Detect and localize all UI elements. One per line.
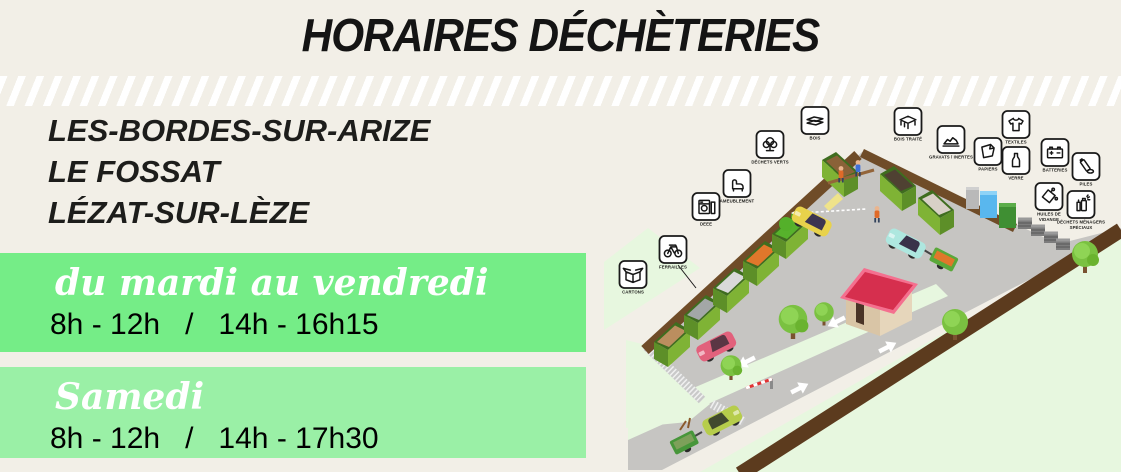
sign-huiles-de-vidange: HUILES DE VIDANGE: [1036, 183, 1063, 222]
sign-bois: BOIS: [802, 107, 829, 141]
sign-label: DÉCHETS VERTS: [751, 160, 788, 165]
location-list: LES-BORDES-SUR-ARIZE LE FOSSAT LÉZAT-SUR…: [48, 110, 430, 233]
sign-dechets-verts: DÉCHETS VERTS: [751, 131, 788, 165]
sign-label: HUILES DE: [1037, 212, 1061, 217]
sign-ferrailles: FERRAILLES: [659, 236, 687, 270]
sign-verre: VERRE: [1003, 147, 1030, 181]
sign-ameublement: AMEUBLEMENT: [720, 170, 755, 204]
sign-label: FERRAILLES: [659, 265, 687, 270]
sign-label: AMEUBLEMENT: [720, 199, 755, 204]
schedule-days-label: Samedi: [55, 377, 586, 417]
sign-label: BOIS TRAITÉ: [894, 137, 922, 142]
sign-gravats-inertes: GRAVATS / INERTES: [929, 126, 973, 160]
schedule-banner-saturday: Samedi 8h - 12h / 14h - 17h30: [0, 367, 586, 458]
sign-textiles: TEXTILES: [1003, 111, 1030, 145]
page-title: HORAIRES DÉCHÈTERIES: [45, 8, 1076, 62]
sign-batteries: BATTERIES: [1042, 139, 1069, 173]
poster: HORAIRES DÉCHÈTERIES LES-BORDES-SUR-ARIZ…: [0, 0, 1121, 472]
sign-label: TEXTILES: [1005, 140, 1026, 145]
sign-deee: DEEE: [693, 193, 720, 227]
location-item: LES-BORDES-SUR-ARIZE: [48, 110, 430, 151]
sign-label: GRAVATS / INERTES: [929, 155, 973, 160]
sign-label: VERRE: [1008, 176, 1023, 181]
sign-label: DEEE: [700, 222, 712, 227]
waste-facility-illustration: CARTONS FERRAILLES DEEE AMEUBLEMENT DÉCH…: [600, 90, 1121, 472]
sign-label: SPÉCIAUX: [1070, 225, 1093, 230]
sign-label: CARTONS: [622, 290, 644, 295]
location-item: LÉZAT-SUR-LÈZE: [48, 192, 430, 233]
sign-cartons: CARTONS: [620, 261, 647, 295]
sign-dechets-menagers-speciaux: DÉCHETS MÉNAGERS SPÉCIAUX: [1057, 191, 1105, 230]
sign-bois-traite: BOIS TRAITÉ: [894, 108, 922, 142]
sign-papiers: PAPIERS: [975, 138, 1002, 172]
schedule-hours: 8h - 12h / 14h - 16h15: [50, 307, 586, 343]
sign-label: PAPIERS: [978, 167, 997, 172]
sign-label: PILES: [1080, 182, 1093, 187]
sign-label: BATTERIES: [1043, 168, 1068, 173]
schedule-hours: 8h - 12h / 14h - 17h30: [50, 421, 586, 457]
sign-label: DÉCHETS MÉNAGERS: [1057, 220, 1105, 225]
location-item: LE FOSSAT: [48, 151, 430, 192]
sign-piles: PILES: [1073, 153, 1100, 187]
schedule-banner-weekdays: du mardi au vendredi 8h - 12h / 14h - 16…: [0, 253, 586, 352]
sign-label: BOIS: [810, 136, 821, 141]
schedule-days-label: du mardi au vendredi: [55, 263, 586, 303]
